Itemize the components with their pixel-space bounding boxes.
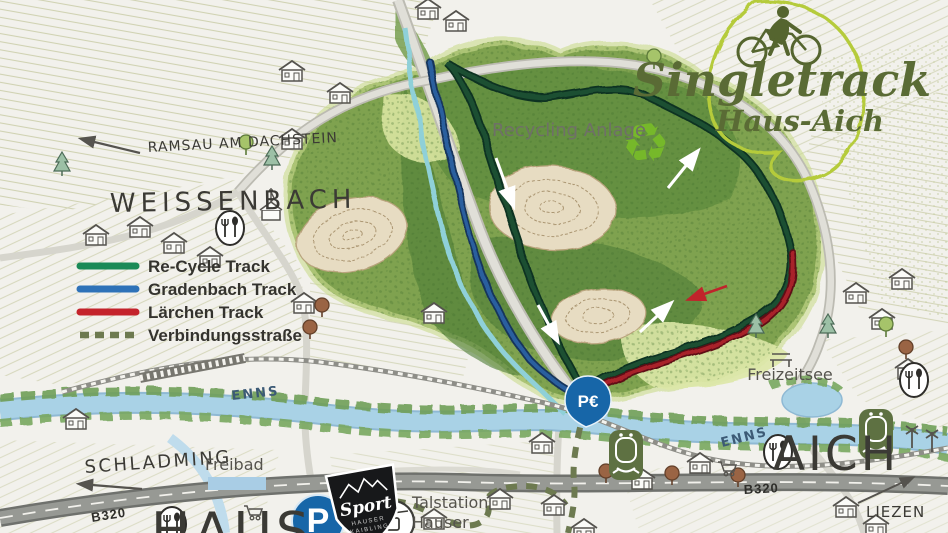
liezen-label: Liezen [866,503,925,521]
freibad-label: Freibad [205,455,264,474]
recycling-anlage-label: Recycling Anlage [492,120,646,141]
freizeitsee-label: Freizeitsee [747,365,833,384]
aich-label: Aich [773,427,899,482]
weissenbach-label: Weissenbach [110,185,357,219]
train-station-icon [609,430,643,480]
b320-label-east: B320 [743,480,779,497]
map-canvas: ♻ Recycling Anlage P€ P Sport HAUSER KAI… [0,0,948,533]
singletrack-map: ♻ Recycling Anlage P€ P Sport HAUSER KAI… [0,0,948,533]
legend-label-laerchen: Lärchen Track [148,303,264,322]
map-subtitle: Haus-Aich [715,104,884,138]
legend-label-verbindung: Verbindungsstraße [148,326,302,345]
legend-label-recycle: Re-Cycle Track [148,257,270,276]
paid-parking-label: P€ [578,392,599,411]
legend-label-gradenbach: Gradenbach Track [148,280,297,299]
haus-label: Haus [151,502,313,533]
talstation-label-line1: Talstation [411,493,488,512]
talstation-label-line2: Hauser [412,513,469,532]
restaurant-icon [900,363,928,397]
map-title: Singletrack [633,53,931,107]
freibad-pool [208,477,266,490]
